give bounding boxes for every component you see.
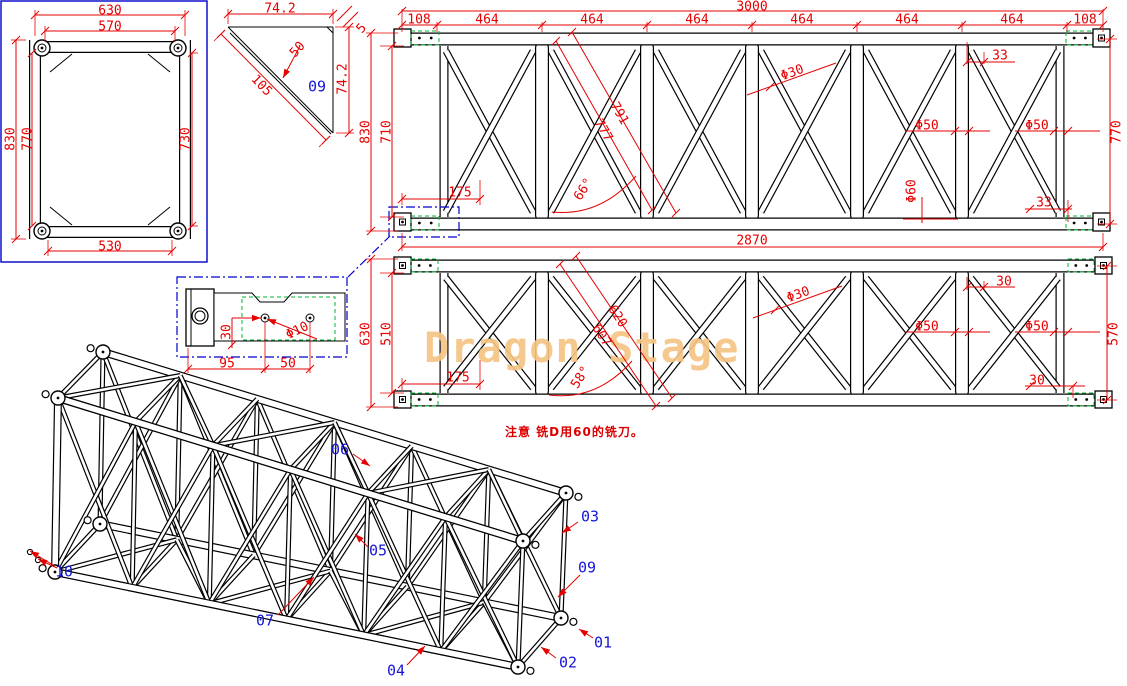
truss-technical-drawing: Dragon Stage63057083077073053074.2550105… (0, 0, 1127, 686)
spigot-stub (42, 391, 49, 398)
label-630: 630 (98, 4, 121, 19)
label-50: Φ50 (1025, 320, 1048, 335)
label-570: 570 (98, 20, 121, 35)
label-530: 530 (98, 240, 121, 255)
center-dot (401, 264, 404, 267)
note-text: 注意 铣D用60的铣刀。 (505, 423, 644, 440)
tube-core (209, 446, 213, 604)
label-630: 630 (359, 322, 374, 345)
center-dot (430, 222, 433, 225)
label-464: 464 (685, 13, 709, 28)
label-66: 66° (571, 176, 596, 204)
center-dot (517, 666, 520, 669)
label-09: 09 (308, 78, 326, 96)
center-dot (401, 398, 404, 401)
spigot-stub (527, 667, 534, 674)
center-dot (1084, 222, 1087, 225)
center-dot (1102, 264, 1105, 267)
label-95: 95 (219, 357, 235, 372)
leader-arrowhead (541, 647, 550, 655)
center-dot (1085, 398, 1088, 401)
part-label-04: 04 (387, 662, 405, 680)
part-label-07: 07 (256, 612, 274, 630)
corner-gusset (148, 207, 170, 225)
dim-tick (766, 83, 774, 91)
center-dot (418, 37, 421, 40)
part-label-02: 02 (559, 654, 577, 672)
label-777: 777 (591, 117, 616, 145)
label-60: Φ60 (905, 179, 920, 202)
label-30: 30 (220, 324, 235, 340)
dim-tick (771, 306, 779, 314)
dim-ext (337, 6, 352, 21)
label-74.2: 74.2 (336, 63, 351, 94)
tube-core (518, 618, 561, 667)
label-108: 108 (407, 13, 430, 28)
corner-gusset (50, 207, 72, 225)
spigot-stub (575, 493, 582, 500)
detail-leader (348, 236, 390, 277)
label-50: Φ50 (1025, 119, 1048, 134)
dim-tick (572, 252, 580, 260)
center-dot (57, 397, 60, 400)
part-label-01: 01 (594, 634, 612, 652)
label-464: 464 (895, 13, 919, 28)
center-dot (418, 398, 421, 401)
center-dot (522, 540, 525, 543)
label-5: 5 (354, 21, 370, 37)
tube-core (132, 446, 213, 588)
label-570: 570 (1107, 322, 1122, 345)
label-50: Φ50 (915, 119, 938, 134)
label-175: 175 (446, 371, 469, 386)
center-dot (1073, 37, 1076, 40)
detail-block (186, 289, 214, 346)
label-108: 108 (1073, 13, 1096, 28)
center-dot (1073, 222, 1076, 225)
label-105: 105 (248, 72, 275, 99)
label-30: Φ30 (785, 284, 812, 306)
label-464: 464 (580, 13, 604, 28)
gusset-chamfer (327, 27, 333, 33)
center-dot (177, 47, 180, 50)
center-dot (565, 492, 568, 495)
label-50: Φ50 (915, 320, 938, 335)
label-175: 175 (448, 186, 471, 201)
label-770: 770 (21, 127, 36, 150)
center-dot (309, 317, 312, 320)
tube-core (287, 493, 369, 619)
dim-tick (672, 209, 680, 217)
spigot-stub (87, 345, 94, 352)
spigot-stub (532, 541, 539, 548)
center-dot (1074, 264, 1077, 267)
label-770: 770 (1110, 120, 1125, 143)
spigot-stub (570, 618, 577, 625)
part-label-09: 09 (578, 559, 596, 577)
label-50: 50 (287, 39, 309, 61)
label-33: 33 (992, 49, 1008, 64)
label-30: Φ30 (779, 62, 806, 84)
label-464: 464 (475, 13, 499, 28)
part-label-05: 05 (369, 542, 387, 560)
center-dot (177, 230, 180, 233)
tube-core (55, 422, 136, 572)
tube-core (523, 493, 566, 541)
center-dot (560, 617, 563, 620)
center-dot (1084, 37, 1087, 40)
center-dot (264, 317, 267, 320)
part-label-03: 03 (581, 508, 599, 526)
label-730: 730 (179, 127, 194, 150)
leader-arrowhead (283, 69, 290, 78)
part-label-10: 10 (55, 563, 73, 581)
label-30: 30 (996, 275, 1012, 290)
label-710: 710 (380, 120, 395, 143)
end-block (394, 29, 411, 47)
center-dot (1100, 221, 1103, 224)
center-dot (1085, 264, 1088, 267)
center-dot (430, 37, 433, 40)
label-33: 33 (1036, 196, 1052, 211)
center-dot (418, 264, 421, 267)
center-dot (99, 523, 102, 526)
part-label-06: 06 (331, 441, 349, 459)
label-830: 830 (359, 120, 374, 143)
label-510: 510 (380, 322, 395, 345)
label-3000: 3000 (736, 0, 767, 15)
center-dot (41, 230, 44, 233)
cad-drawing-canvas: Dragon Stage63057083077073053074.2550105… (0, 0, 1127, 686)
corner-gusset (148, 54, 170, 72)
spigot-stub (39, 565, 46, 572)
center-dot (429, 264, 432, 267)
center-dot (102, 351, 105, 354)
spigot-stub (84, 517, 91, 524)
center-dot (1102, 398, 1105, 401)
corner-gusset (50, 54, 72, 72)
tube-core (55, 398, 58, 572)
tube-core (254, 423, 335, 556)
label-830: 830 (4, 127, 19, 150)
center-dot (429, 398, 432, 401)
center-dot (401, 221, 404, 224)
center-dot (41, 47, 44, 50)
label-74.2: 74.2 (264, 2, 295, 17)
label-464: 464 (790, 13, 814, 28)
leader-arrowhead (361, 458, 370, 466)
center-dot (1074, 398, 1077, 401)
label-50: 50 (280, 357, 296, 372)
label-2870: 2870 (736, 234, 767, 249)
leader-arrowhead (579, 629, 588, 637)
label-30: 30 (1029, 374, 1045, 389)
center-dot (418, 222, 421, 225)
label-464: 464 (1000, 13, 1024, 28)
